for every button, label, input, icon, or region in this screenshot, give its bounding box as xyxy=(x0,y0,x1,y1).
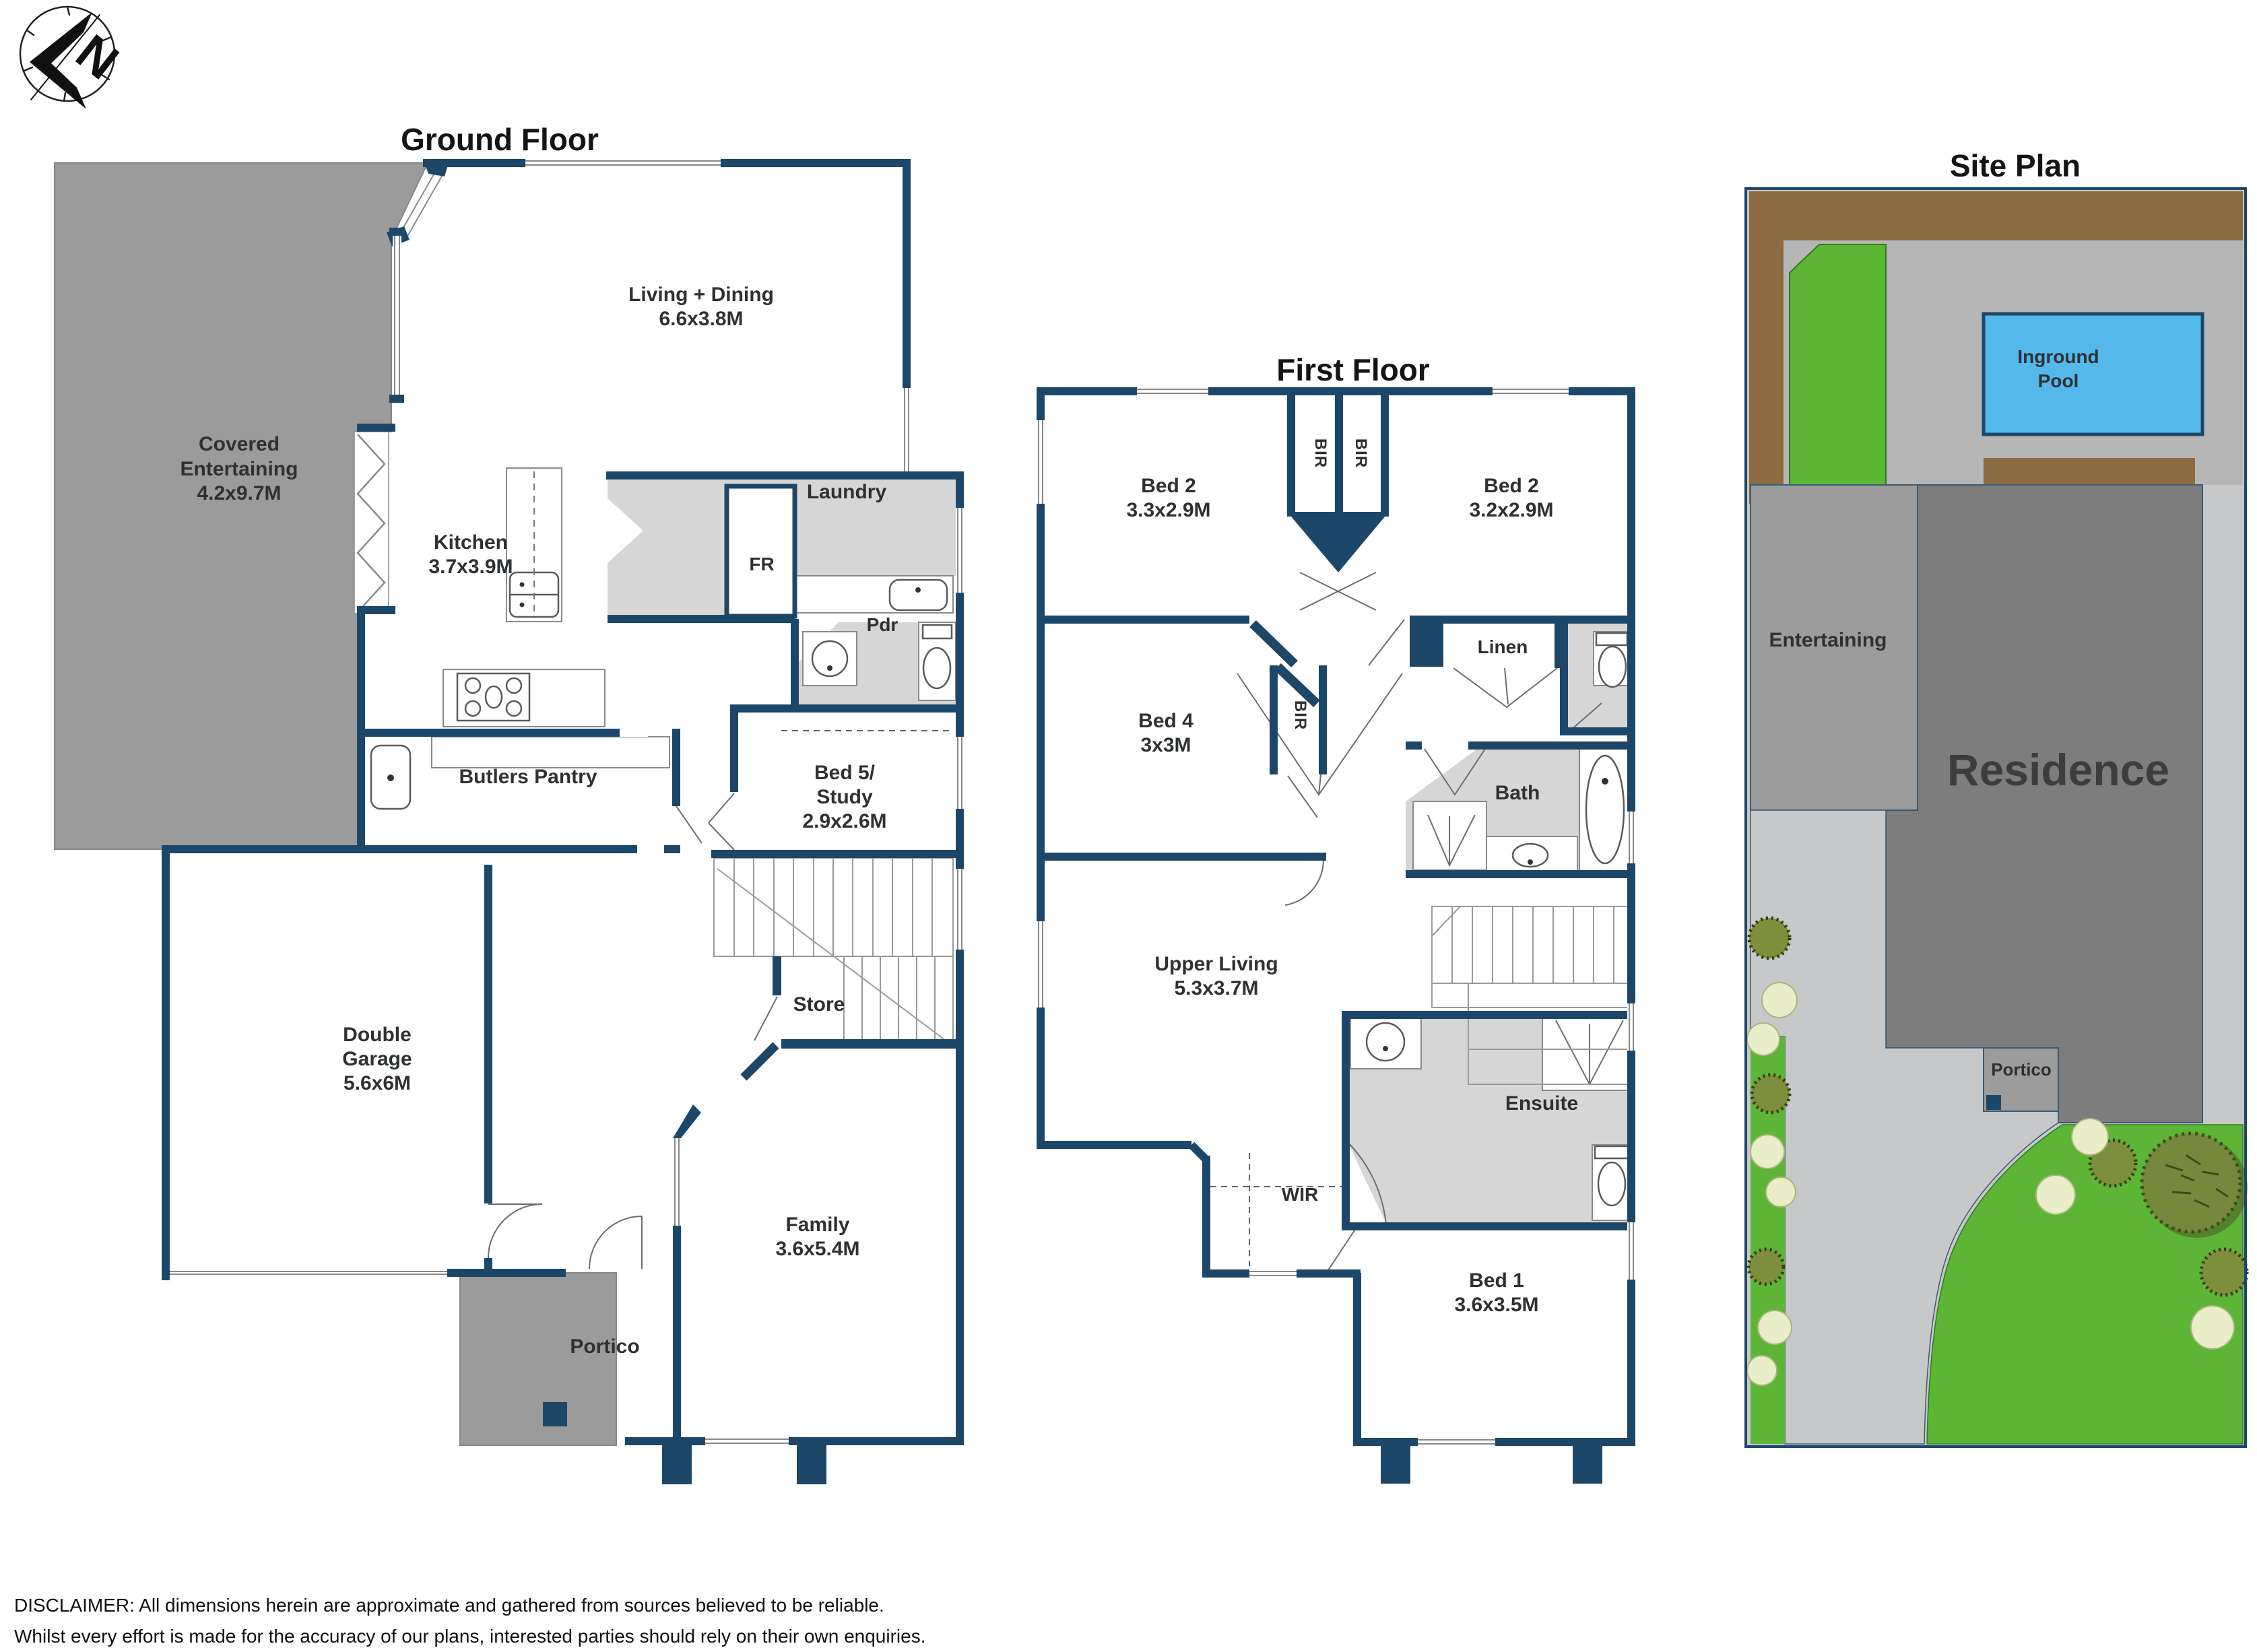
site-brown-top xyxy=(1749,191,2243,240)
room-label-bath: Bath xyxy=(1495,783,1540,803)
floorplan-canvas: N xyxy=(0,0,2257,1652)
room-label-upper-living: Upper Living xyxy=(1154,954,1278,974)
room-dims-bed2-right: 3.2x2.9M xyxy=(1469,500,1553,521)
site-label-pool-2: Pool xyxy=(2038,372,2079,391)
room-label-covered-entertaining-2: Entertaining xyxy=(180,459,298,480)
room-dims-living-dining: 6.6x3.8M xyxy=(659,309,743,329)
room-label-bed1: Bed 1 xyxy=(1469,1271,1524,1291)
site-plan-title: Site Plan xyxy=(1950,150,2081,181)
disclaimer-line-2: Whilst every effort is made for the accu… xyxy=(14,1626,925,1647)
room-dims-upper-living: 5.3x3.7M xyxy=(1174,979,1258,999)
site-label-portico: Portico xyxy=(1991,1061,2052,1078)
room-label-bed2-left: Bed 2 xyxy=(1141,476,1196,496)
site-plan xyxy=(1746,189,2248,1447)
floorplan-page: N xyxy=(0,0,2257,1652)
room-label-bir-3: BIR xyxy=(1292,700,1308,730)
bifold-doors xyxy=(354,432,389,614)
room-label-garage: Double xyxy=(343,1025,412,1045)
room-dims-bed2-left: 3.3x2.9M xyxy=(1126,500,1210,521)
room-label-covered-entertaining: Covered xyxy=(199,434,280,455)
room-label-ensuite: Ensuite xyxy=(1505,1094,1578,1114)
site-label-entertaining: Entertaining xyxy=(1769,630,1887,651)
site-label-pool: Inground xyxy=(2017,348,2099,366)
site-brown-strip xyxy=(1984,458,2195,486)
room-dims-garage: 5.6x6M xyxy=(344,1073,411,1094)
room-label-bir-1: BIR xyxy=(1312,438,1328,468)
room-dims-bed4: 3x3M xyxy=(1140,735,1191,756)
first-floor-walls xyxy=(1037,387,1635,1484)
room-dims-covered-entertaining: 4.2x9.7M xyxy=(197,484,281,504)
room-label-laundry: Laundry xyxy=(807,482,886,502)
room-label-portico: Portico xyxy=(570,1337,639,1357)
fridge-recess xyxy=(727,486,795,616)
disclaimer-line-1: DISCLAIMER: All dimensions herein are ap… xyxy=(14,1595,884,1616)
room-label-fr: FR xyxy=(749,555,774,574)
site-residence-area xyxy=(1886,485,2202,1123)
room-dims-kitchen: 3.7x3.9M xyxy=(428,557,513,577)
compass-north-icon: N xyxy=(20,7,129,109)
room-dims-bed5: 2.9x2.6M xyxy=(802,812,886,832)
site-brown-left xyxy=(1749,191,1784,504)
room-label-pdr: Pdr xyxy=(867,616,898,634)
ground-floor-title: Ground Floor xyxy=(401,124,599,155)
site-label-residence: Residence xyxy=(1947,748,2169,792)
room-label-bed2-right: Bed 2 xyxy=(1484,476,1539,496)
room-label-bir-2: BIR xyxy=(1352,438,1369,468)
room-label-bed4: Bed 4 xyxy=(1138,711,1193,731)
room-label-kitchen: Kitchen xyxy=(434,533,508,553)
room-dims-family: 3.6x5.4M xyxy=(775,1239,859,1259)
portico-area xyxy=(460,1273,616,1445)
room-label-living-dining: Living + Dining xyxy=(628,285,774,305)
room-label-linen: Linen xyxy=(1478,638,1528,657)
room-label-family: Family xyxy=(785,1215,849,1235)
room-label-store: Store xyxy=(793,995,845,1015)
room-label-bed5-2: Study xyxy=(816,787,872,807)
inground-pool xyxy=(1984,314,2202,434)
stairs-ground xyxy=(714,858,953,1048)
room-dims-bed1: 3.6x3.5M xyxy=(1454,1295,1538,1315)
first-floor-title: First Floor xyxy=(1276,354,1429,385)
first-floor-plan xyxy=(1037,387,1635,1484)
room-label-butlers-pantry: Butlers Pantry xyxy=(459,767,597,787)
room-label-bed5: Bed 5/ xyxy=(814,763,875,783)
room-label-wir: WIR xyxy=(1282,1185,1318,1204)
site-garden-strip-upper xyxy=(1790,244,1886,504)
room-label-garage-2: Garage xyxy=(342,1049,412,1069)
